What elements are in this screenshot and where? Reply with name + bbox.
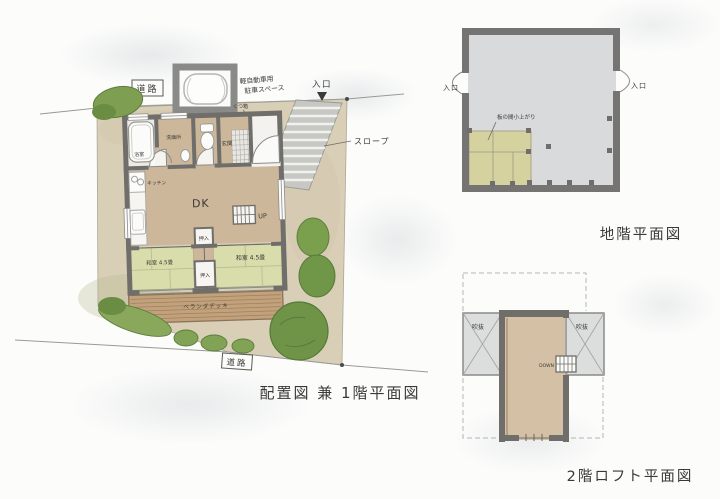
kitchen-counter	[129, 171, 147, 245]
dk-label: DK	[192, 197, 210, 211]
stairs-down-icon	[556, 356, 576, 372]
basement-entrance-left-label: 入口	[443, 84, 459, 92]
loft-floor	[505, 317, 565, 440]
site-plan: 道路 軽自動車用 駐車スペース 入口 スロープ くつ箱	[15, 67, 428, 402]
road-label-bottom: 道路	[222, 353, 253, 370]
shoe-cabinet-label: くつ箱	[233, 103, 248, 110]
floorplan-sheet: 道路 軽自動車用 駐車スペース 入口 スロープ くつ箱	[0, 0, 720, 499]
stairs-up-icon	[233, 205, 256, 224]
slope-label: スロープ	[354, 137, 390, 146]
washroom-label: 洗面所	[166, 134, 181, 141]
site-entrance-label: 入口	[312, 80, 332, 90]
road-label-bottom-text: 道路	[226, 357, 248, 369]
closet-upper-label: 押入	[199, 235, 209, 242]
up-label: UP	[258, 212, 267, 220]
parking-label: 軽自動車用 駐車スペース	[239, 73, 285, 96]
void-right-label: 吹抜	[576, 323, 588, 331]
basement-plan: 板の間小上がり 入口 入口 地階平面図	[443, 28, 682, 243]
site-plan-title: 配置図 兼 1階平面図	[259, 384, 420, 402]
parking-label-line1: 軽自動車用	[239, 74, 274, 86]
floorplan-drawing: 道路 軽自動車用 駐車スペース 入口 スロープ くつ箱	[0, 0, 720, 499]
void-left	[463, 313, 502, 375]
basement-platform	[469, 131, 531, 186]
basement-plan-title: 地階平面図	[600, 226, 683, 243]
void-left-label: 吹抜	[472, 323, 484, 331]
basement-platform-note: 板の間小上がり	[497, 113, 536, 121]
loft-plan: DOWN 吹抜 吹抜 2階ロフト平面図	[463, 273, 693, 485]
tatami-right-label: 和室 4.5畳	[236, 253, 266, 262]
bath-label: 浴室	[134, 151, 144, 158]
basement-entrance-right-label: 入口	[631, 82, 647, 90]
closet-lower-label: 押入	[200, 272, 210, 279]
loft-plan-title: 2階ロフト平面図	[567, 468, 694, 485]
toilet-icon	[200, 124, 214, 150]
kitchen-label: キッチン	[147, 180, 167, 187]
down-label: DOWN	[539, 363, 554, 369]
basement-door-right	[620, 70, 630, 92]
washbasin-icon	[181, 149, 190, 161]
parking-space	[176, 67, 234, 110]
